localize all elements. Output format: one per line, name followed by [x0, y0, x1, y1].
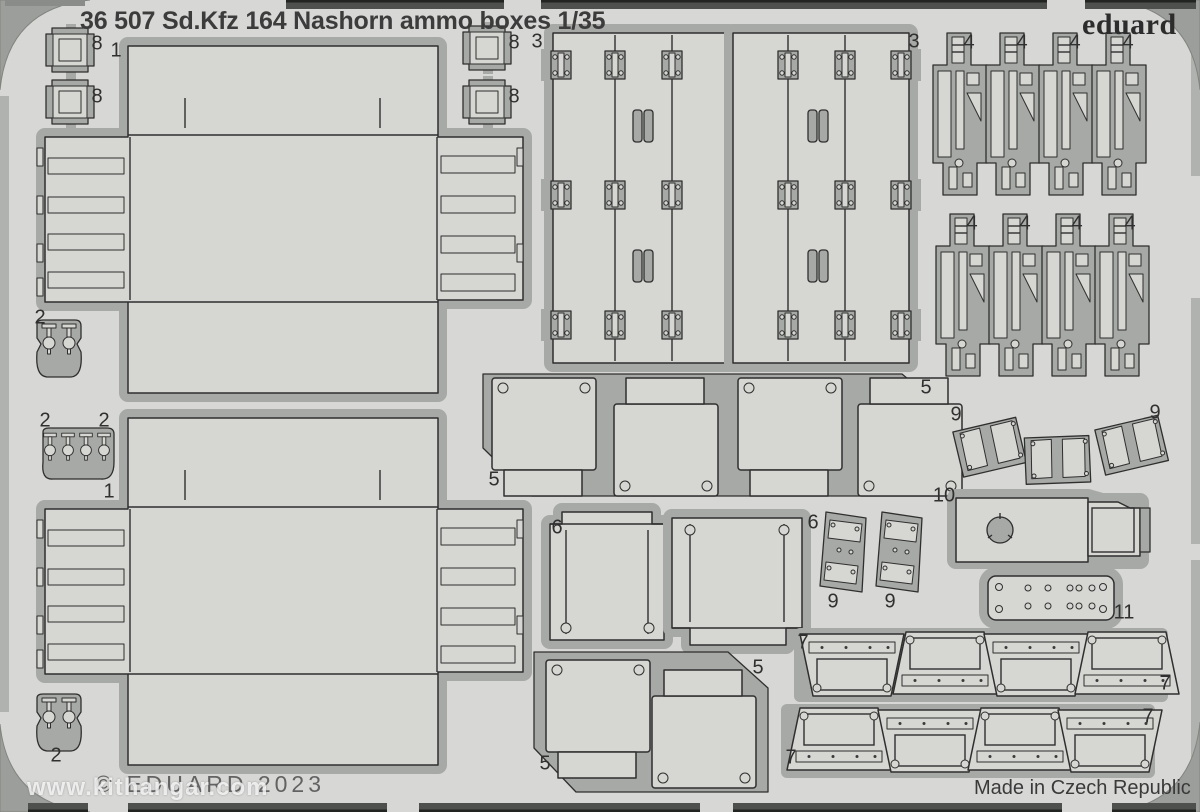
part-8-buckle [463, 76, 511, 128]
photo-etch-fret [0, 0, 1200, 812]
photo-etch-sheet-photo: 36 507 Sd.Kfz 164 Nashorn ammo boxes 1/3… [0, 0, 1200, 812]
part-11-plate [988, 576, 1114, 620]
part-5-lid-strip [483, 374, 962, 496]
part-9-bracket-small [820, 512, 866, 592]
part-6-lid-left [550, 512, 664, 640]
part-3-door-panel-left [541, 33, 729, 363]
sheet-title: 36 507 Sd.Kfz 164 Nashorn ammo boxes 1/3… [80, 7, 605, 36]
part-2-pins [37, 694, 82, 751]
part-3-door-panel-right [733, 33, 921, 363]
part-10-tray [956, 498, 1150, 562]
part-2-pins [37, 320, 82, 377]
part-9-bracket-small [876, 512, 922, 592]
made-in-text: Made in Czech Republic [974, 777, 1191, 800]
part-6-lid-right [672, 518, 802, 645]
watermark-text: www.kithangar.com [27, 774, 269, 802]
sheet-left-rim [0, 96, 9, 712]
part-2-pin-strip [43, 428, 114, 479]
eduard-logo: eduard [1082, 8, 1177, 42]
part-5-lid-strip-bottom [534, 652, 768, 792]
part-8-buckle [46, 76, 94, 128]
